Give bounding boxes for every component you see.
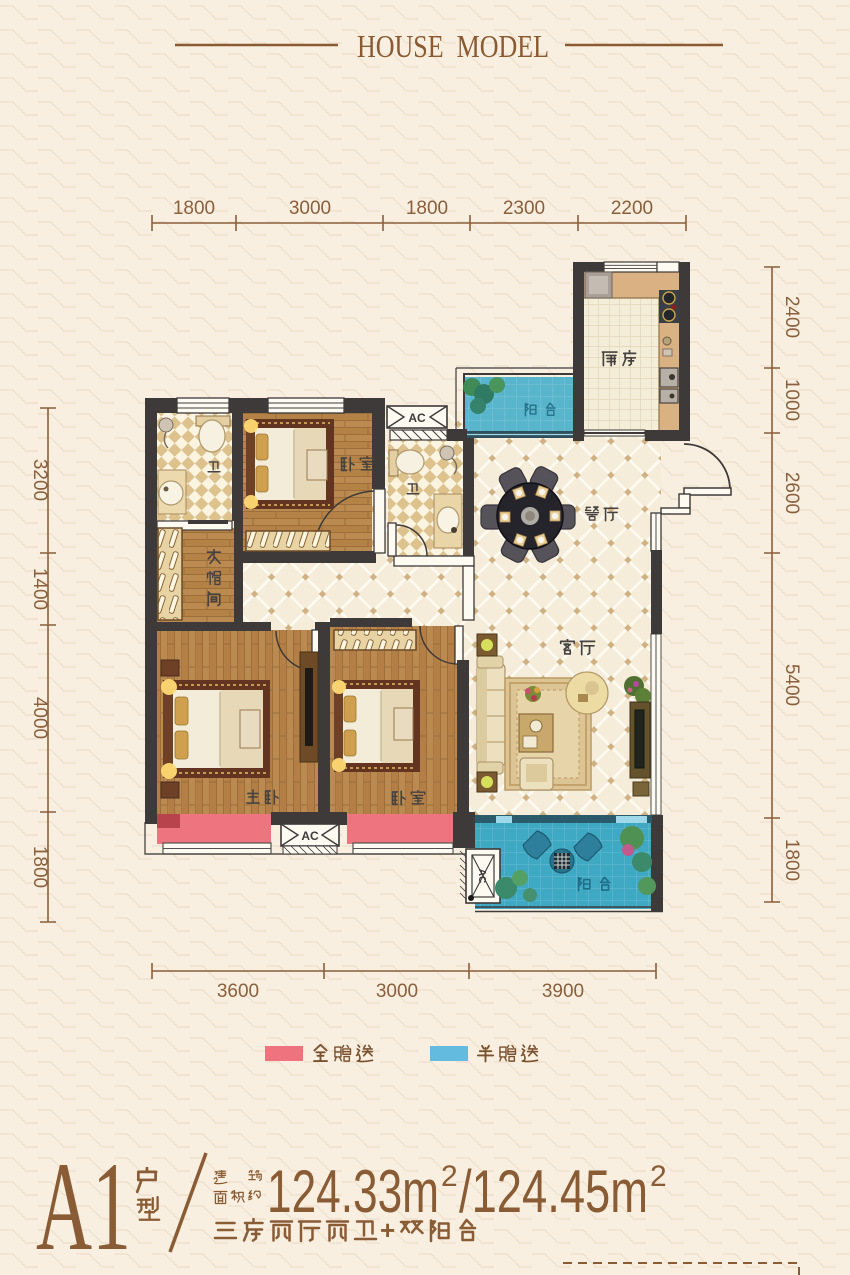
svg-text:1800: 1800 (173, 198, 215, 219)
svg-text:3600: 3600 (217, 981, 259, 1002)
svg-text:2: 2 (441, 1160, 458, 1193)
svg-text:1800: 1800 (781, 839, 802, 881)
svg-text:/124.45m: /124.45m (459, 1158, 648, 1225)
svg-text:AC: AC (408, 411, 426, 425)
svg-text:3000: 3000 (376, 981, 418, 1002)
svg-text:AC: AC (301, 829, 319, 843)
svg-text:3900: 3900 (542, 981, 584, 1002)
svg-text:+: + (380, 1215, 395, 1245)
svg-text:124.33m: 124.33m (267, 1158, 439, 1225)
svg-text:1000: 1000 (781, 379, 802, 421)
svg-text:2600: 2600 (781, 472, 802, 514)
svg-text:3000: 3000 (289, 198, 331, 219)
svg-text:2400: 2400 (781, 296, 802, 338)
svg-text:2200: 2200 (611, 198, 653, 219)
svg-text:HOUSE MODEL: HOUSE MODEL (357, 28, 549, 64)
svg-text:3200: 3200 (29, 459, 50, 501)
svg-text:A1: A1 (36, 1137, 131, 1275)
svg-text:5400: 5400 (781, 664, 802, 706)
svg-text:2300: 2300 (503, 198, 545, 219)
svg-text:AC: AC (476, 869, 487, 883)
svg-text:1800: 1800 (29, 846, 50, 888)
svg-text:1800: 1800 (406, 198, 448, 219)
svg-text:2: 2 (650, 1160, 667, 1193)
svg-text:4000: 4000 (29, 697, 50, 739)
svg-text:1400: 1400 (29, 568, 50, 610)
